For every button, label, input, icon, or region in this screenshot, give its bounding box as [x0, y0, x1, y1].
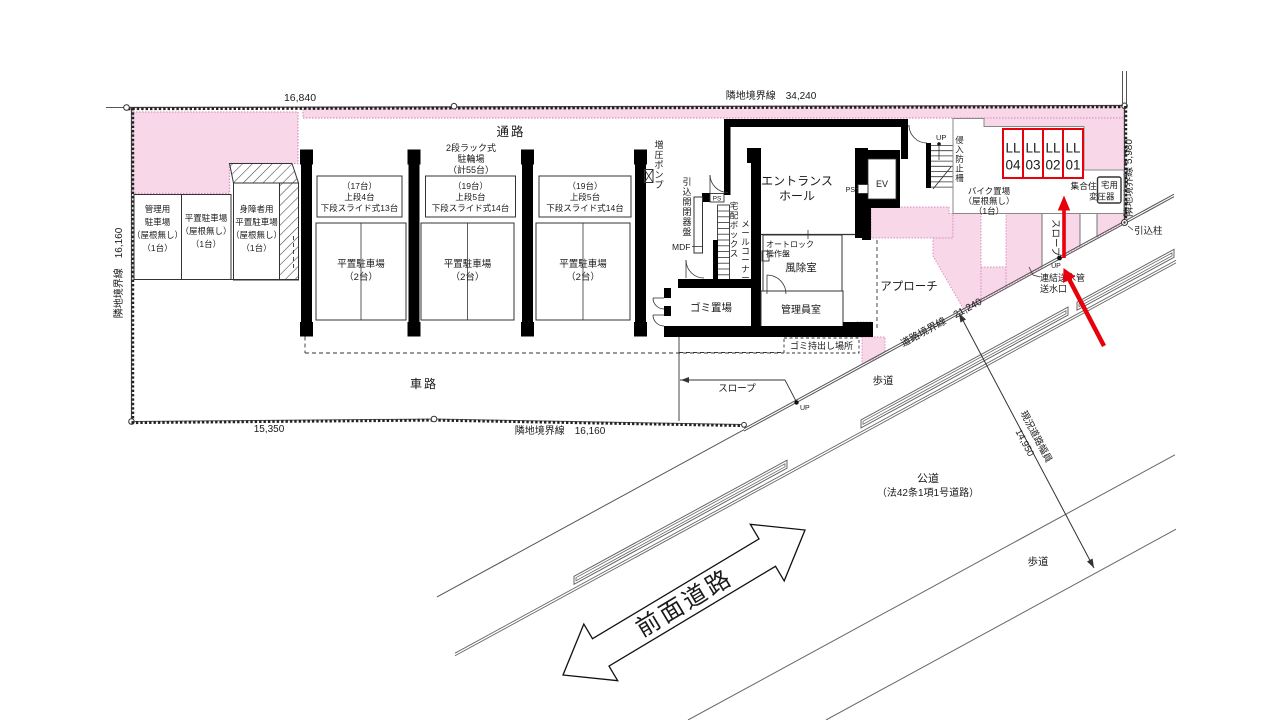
- svg-text:変圧器: 変圧器: [1089, 192, 1115, 202]
- svg-text:LL: LL: [1045, 141, 1061, 156]
- svg-text:平置駐車場: 平置駐車場: [559, 258, 607, 270]
- svg-text:車路: 車路: [410, 376, 438, 391]
- svg-text:（1台）: （1台）: [241, 243, 271, 253]
- svg-text:メールコーナー: メールコーナー: [741, 219, 750, 283]
- svg-text:増圧ポンプ: 増圧ポンプ: [654, 139, 663, 190]
- svg-text:LL: LL: [1025, 141, 1041, 156]
- svg-text:管理員室: 管理員室: [781, 303, 821, 316]
- svg-text:04: 04: [1005, 158, 1021, 173]
- svg-text:LL: LL: [1005, 141, 1021, 156]
- svg-text:アプローチ: アプローチ: [880, 280, 938, 293]
- svg-text:EV: EV: [876, 179, 888, 189]
- svg-text:15,350: 15,350: [254, 424, 285, 435]
- svg-text:隣地境界線 16,160: 隣地境界線 16,160: [112, 227, 125, 318]
- svg-text:LL: LL: [1065, 141, 1081, 156]
- svg-text:駐輪場: 駐輪場: [457, 153, 484, 164]
- svg-text:上段5台: 上段5台: [570, 192, 600, 202]
- svg-text:オートロック: オートロック: [766, 240, 814, 249]
- svg-text:下段スライド式14台: 下段スライド式14台: [546, 203, 623, 213]
- svg-text:上段4台: 上段4台: [344, 192, 374, 202]
- svg-text:（屋根無し）: （屋根無し）: [231, 230, 282, 240]
- svg-text:引込柱: 引込柱: [1134, 225, 1163, 237]
- svg-text:（計55台）: （計55台）: [448, 164, 494, 175]
- svg-text:下段スライド式14台: 下段スライド式14台: [432, 203, 509, 213]
- svg-text:UP: UP: [936, 133, 946, 142]
- svg-text:2段ラック式: 2段ラック式: [446, 142, 496, 153]
- svg-text:MDF: MDF: [672, 242, 690, 252]
- svg-text:平置駐車場: 平置駐車場: [337, 258, 385, 270]
- svg-text:（2台）: （2台）: [566, 271, 600, 283]
- svg-text:歩道: 歩道: [1028, 555, 1050, 568]
- svg-text:侵入防止柵: 侵入防止柵: [955, 135, 964, 183]
- svg-text:UP: UP: [800, 405, 810, 412]
- svg-text:宅用: 宅用: [1101, 180, 1118, 190]
- svg-text:（屋根無し）: （屋根無し）: [180, 226, 231, 236]
- svg-text:引込開閉器盤: 引込開閉器盤: [682, 177, 691, 237]
- svg-text:通路: 通路: [496, 124, 525, 139]
- svg-text:（1台）: （1台）: [974, 206, 1004, 216]
- svg-text:01: 01: [1065, 158, 1080, 173]
- svg-text:身障者用: 身障者用: [239, 204, 273, 214]
- svg-text:（2台）: （2台）: [344, 271, 378, 283]
- svg-text:隣地境界線 34,240: 隣地境界線 34,240: [726, 89, 817, 102]
- svg-text:UP: UP: [1051, 263, 1061, 270]
- svg-text:宅配ボックス: 宅配ボックス: [730, 201, 739, 259]
- svg-text:（17台）: （17台）: [342, 181, 377, 191]
- svg-text:バイク置場: バイク置場: [968, 186, 1011, 196]
- svg-text:平置駐車場: 平置駐車場: [444, 258, 492, 270]
- svg-text:下段スライド式13台: 下段スライド式13台: [321, 203, 398, 213]
- svg-text:上段5台: 上段5台: [455, 192, 485, 202]
- svg-text:スロープ: スロープ: [718, 384, 756, 395]
- svg-text:16,840: 16,840: [284, 92, 316, 104]
- svg-text:（1台）: （1台）: [142, 243, 172, 253]
- svg-text:平置駐車場: 平置駐車場: [235, 217, 278, 227]
- svg-text:（19台）: （19台）: [453, 181, 488, 191]
- svg-text:02: 02: [1045, 158, 1060, 173]
- svg-text:スロープ: スロープ: [1050, 219, 1061, 257]
- svg-text:公道: 公道: [917, 471, 939, 485]
- svg-text:03: 03: [1025, 158, 1040, 173]
- svg-text:PS: PS: [846, 187, 856, 194]
- svg-text:操作盤: 操作盤: [766, 249, 790, 259]
- svg-text:（19台）: （19台）: [568, 181, 603, 191]
- svg-text:連結送水管: 連結送水管: [1040, 272, 1085, 283]
- svg-text:歩道: 歩道: [873, 374, 894, 387]
- svg-text:（1台）: （1台）: [191, 239, 221, 249]
- svg-text:風除室: 風除室: [785, 261, 817, 274]
- svg-text:エントランス: エントランス: [761, 174, 833, 188]
- svg-text:送水口: 送水口: [1040, 283, 1067, 294]
- svg-text:集合住: 集合住: [1071, 180, 1097, 191]
- svg-text:（2台）: （2台）: [451, 271, 485, 283]
- svg-text:（屋根無し）: （屋根無し）: [132, 230, 183, 240]
- svg-text:（法42条1項1号道路）: （法42条1項1号道路）: [877, 486, 979, 499]
- svg-text:ゴミ持出し場所: ゴミ持出し場所: [790, 340, 853, 351]
- svg-text:ゴミ置場: ゴミ置場: [690, 301, 732, 314]
- svg-text:平置駐車場: 平置駐車場: [185, 213, 228, 223]
- svg-text:ホール: ホール: [779, 189, 815, 203]
- svg-text:隣地境界線 16,160: 隣地境界線 16,160: [515, 424, 606, 437]
- svg-text:管理用: 管理用: [145, 204, 171, 214]
- svg-text:PS: PS: [713, 196, 722, 203]
- svg-text:駐車場: 駐車場: [145, 217, 171, 227]
- svg-text:（屋根無し）: （屋根無し）: [963, 196, 1014, 206]
